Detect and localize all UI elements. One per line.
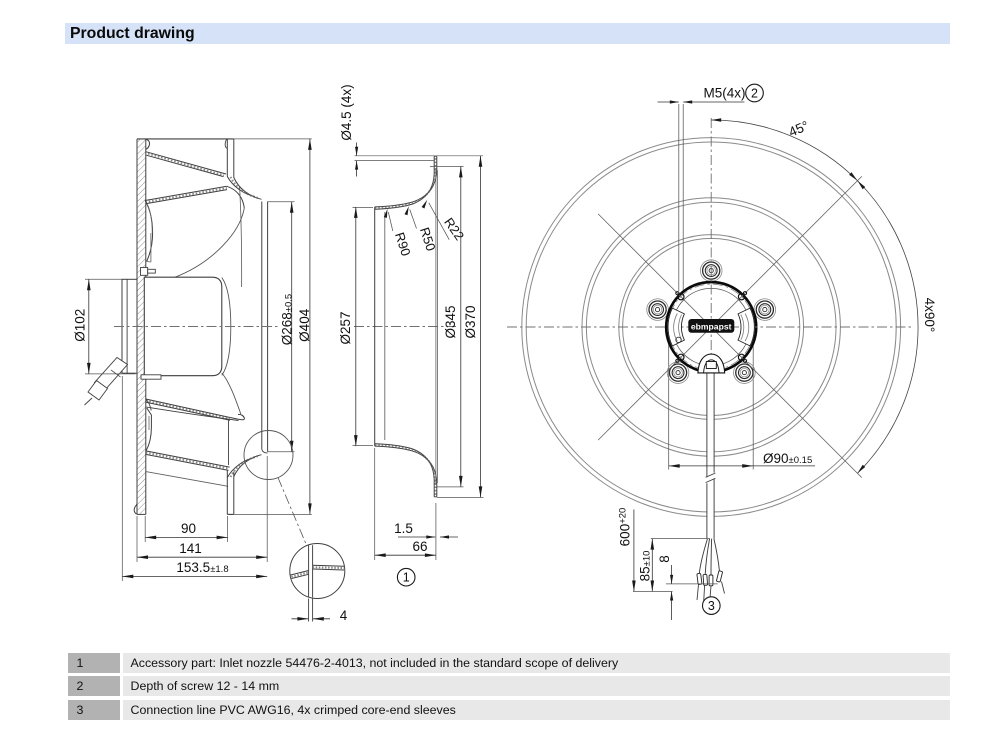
svg-text:8: 8: [657, 555, 672, 563]
svg-text:153.5±1.8: 153.5±1.8: [176, 560, 228, 575]
svg-text:Ø404: Ø404: [297, 308, 312, 342]
svg-text:Ø90±0.15: Ø90±0.15: [763, 451, 812, 466]
svg-text:Ø257: Ø257: [338, 311, 353, 344]
svg-text:Ø370: Ø370: [463, 305, 478, 338]
svg-text:R90: R90: [392, 230, 414, 257]
svg-text:3: 3: [708, 599, 715, 613]
svg-text:ebmpapst: ebmpapst: [691, 321, 732, 331]
svg-text:141: 141: [179, 541, 202, 556]
svg-text:85±10: 85±10: [638, 551, 653, 582]
svg-text:2: 2: [751, 86, 758, 100]
svg-text:66: 66: [412, 539, 427, 554]
svg-text:1.5: 1.5: [394, 521, 413, 536]
svg-text:4x90°: 4x90°: [922, 298, 937, 333]
svg-text:Ø4.5 (4x): Ø4.5 (4x): [339, 84, 354, 140]
svg-text:4: 4: [340, 608, 348, 623]
svg-text:Ø345: Ø345: [443, 305, 458, 338]
svg-text:R50: R50: [417, 225, 439, 252]
svg-text:Ø102: Ø102: [73, 309, 88, 342]
svg-text:1: 1: [403, 571, 410, 585]
svg-text:Ø268±0.5: Ø268±0.5: [280, 294, 295, 345]
svg-text:600+20: 600+20: [618, 508, 633, 547]
svg-text:45°: 45°: [786, 118, 811, 140]
svg-text:M5(4x): M5(4x): [703, 86, 745, 101]
svg-text:90: 90: [181, 521, 196, 536]
svg-text:R22: R22: [441, 215, 467, 243]
